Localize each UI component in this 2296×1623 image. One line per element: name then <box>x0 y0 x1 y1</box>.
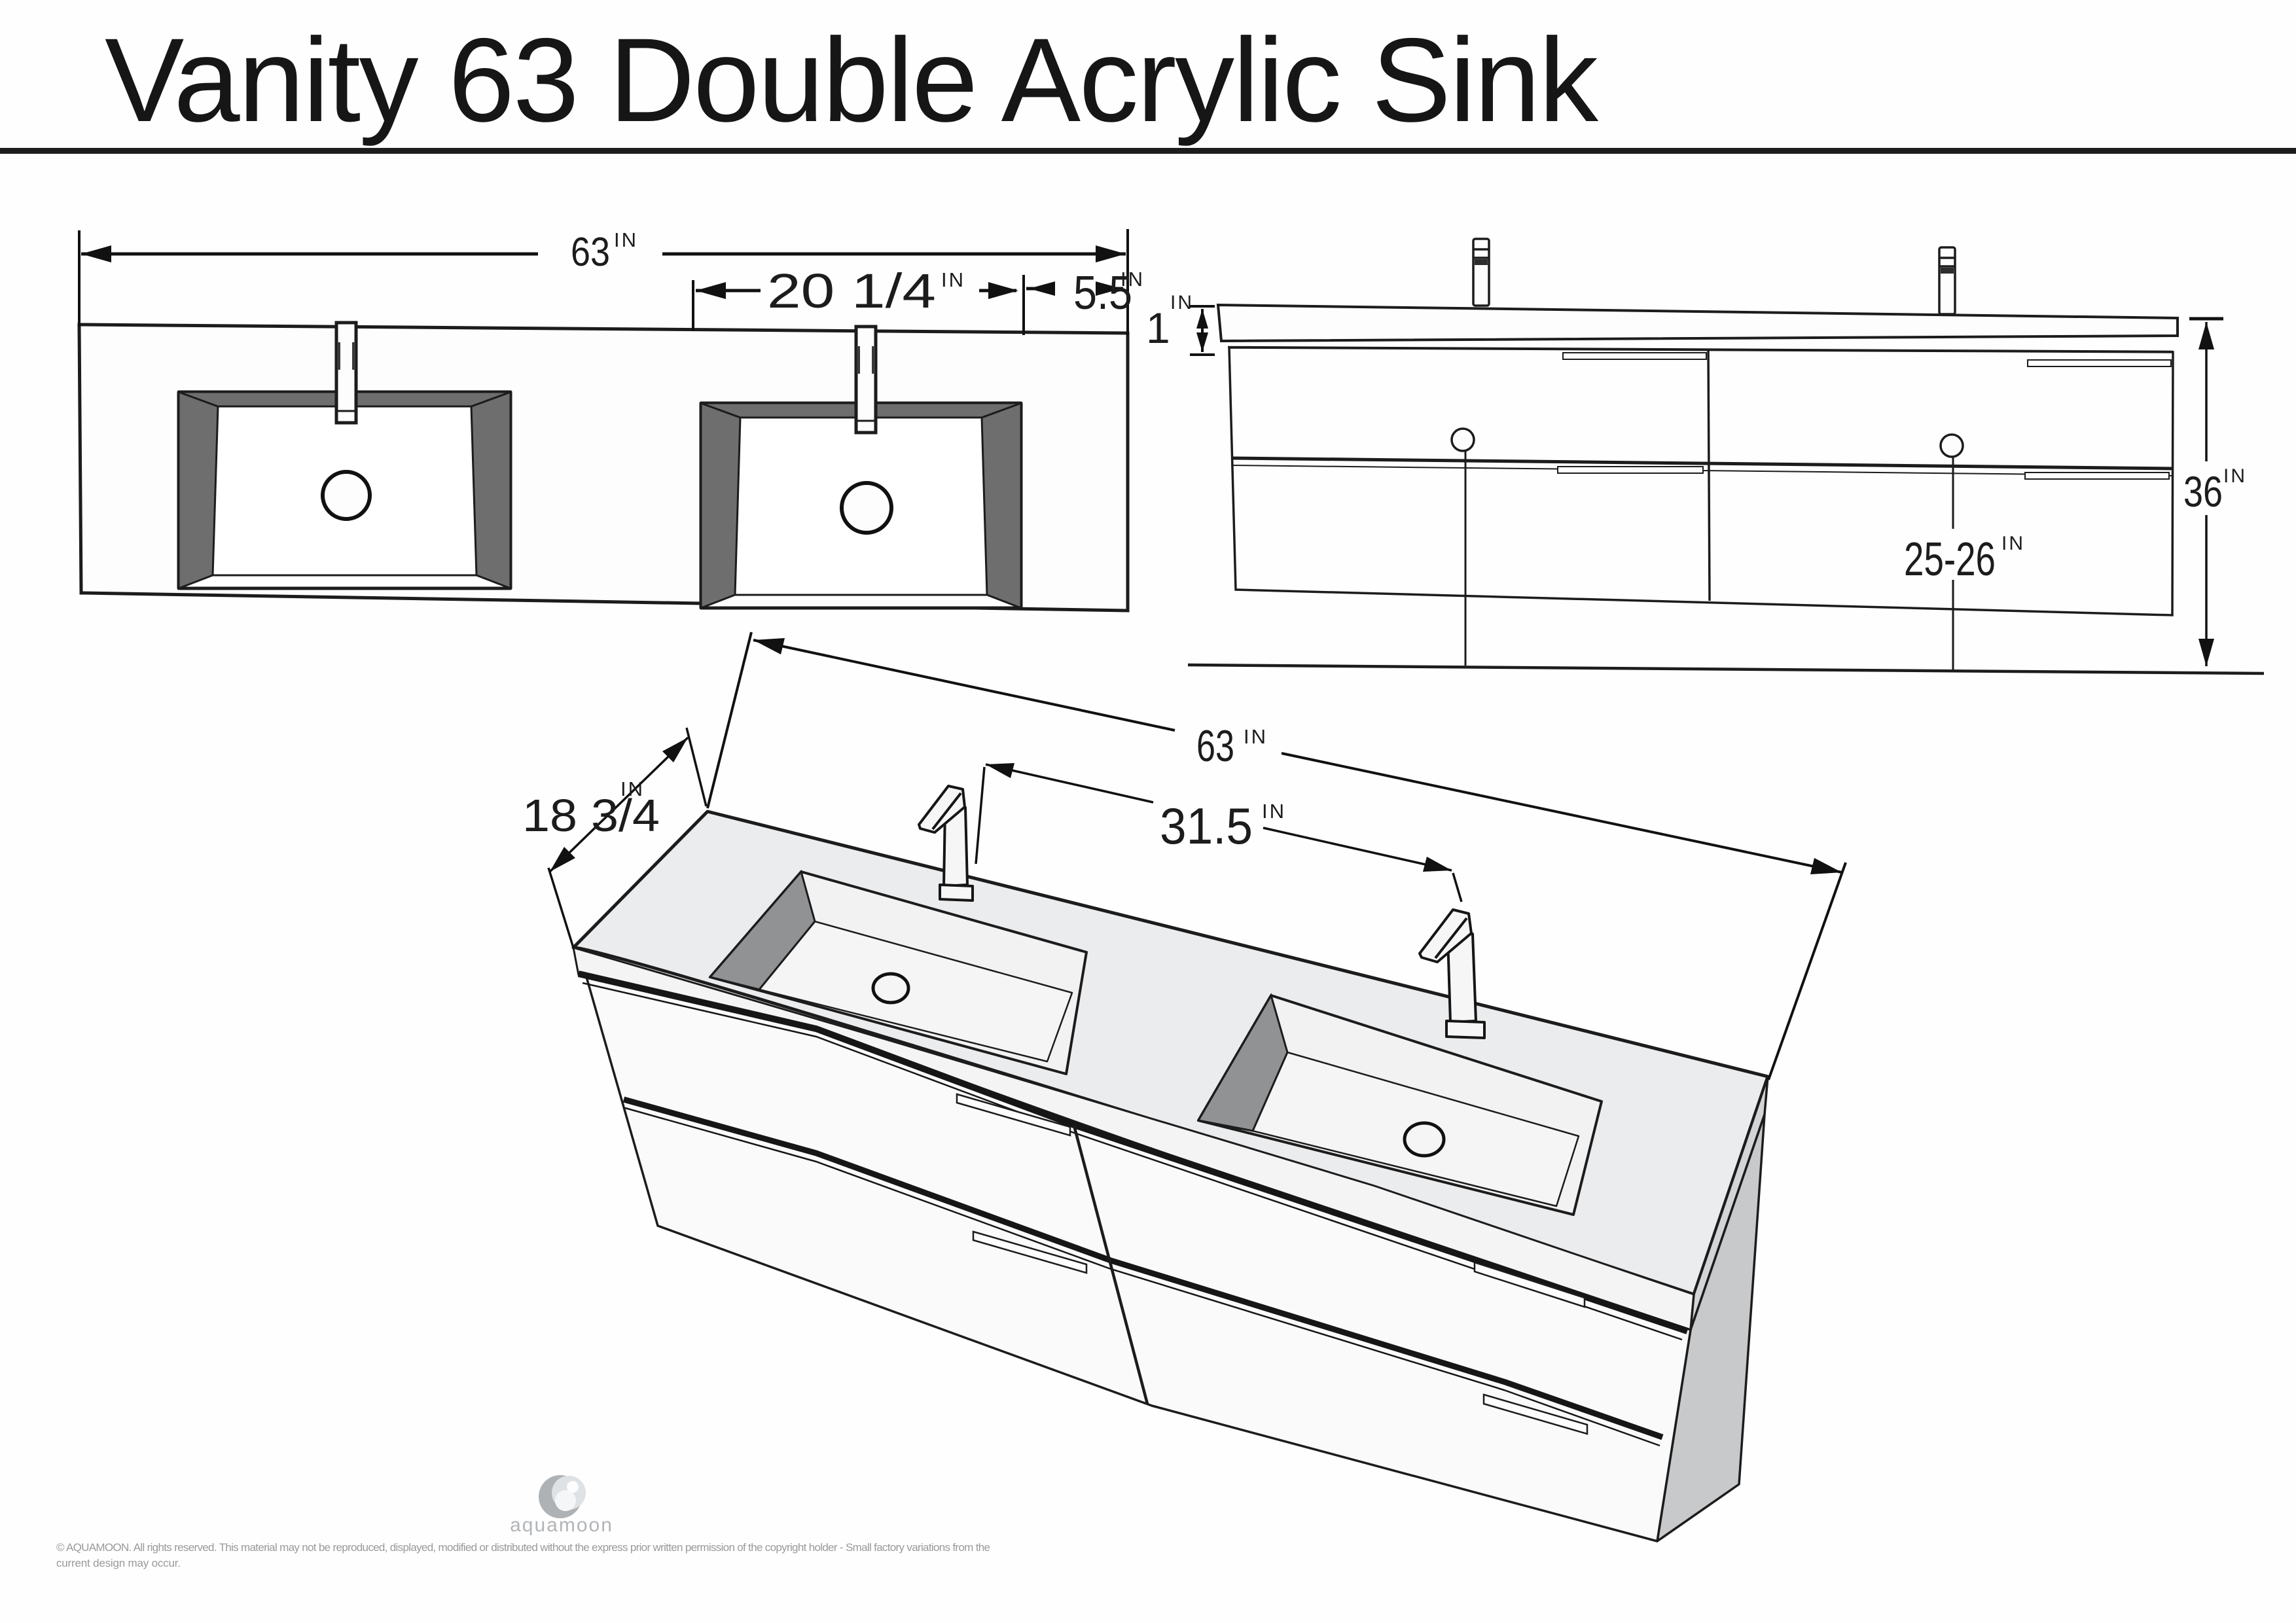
svg-text:Vanity 63 Double Acrylic Sink: Vanity 63 Double Acrylic Sink <box>105 13 1599 147</box>
svg-text:IN: IN <box>2223 465 2247 487</box>
svg-text:IN: IN <box>1121 268 1145 291</box>
svg-text:36: 36 <box>2183 467 2223 516</box>
svg-text:IN: IN <box>941 268 965 291</box>
svg-text:aquamoon: aquamoon <box>510 1514 613 1536</box>
svg-text:IN: IN <box>2001 533 2025 554</box>
svg-text:31.5: 31.5 <box>1160 797 1253 855</box>
svg-text:25-26: 25-26 <box>1904 533 1996 586</box>
svg-text:1: 1 <box>1146 304 1170 352</box>
svg-text:20 1/4: 20 1/4 <box>767 264 936 318</box>
svg-text:© AQUAMOON. All rights reserve: © AQUAMOON. All rights reserved. This ma… <box>56 1541 990 1554</box>
svg-text:IN: IN <box>1170 292 1194 313</box>
svg-text:current design may occur.: current design may occur. <box>56 1557 181 1569</box>
svg-text:IN: IN <box>614 228 638 251</box>
svg-text:63: 63 <box>1196 721 1234 771</box>
svg-text:IN: IN <box>620 777 645 800</box>
svg-text:63: 63 <box>571 230 610 275</box>
svg-text:IN: IN <box>1262 800 1286 823</box>
svg-text:IN: IN <box>1244 725 1268 748</box>
